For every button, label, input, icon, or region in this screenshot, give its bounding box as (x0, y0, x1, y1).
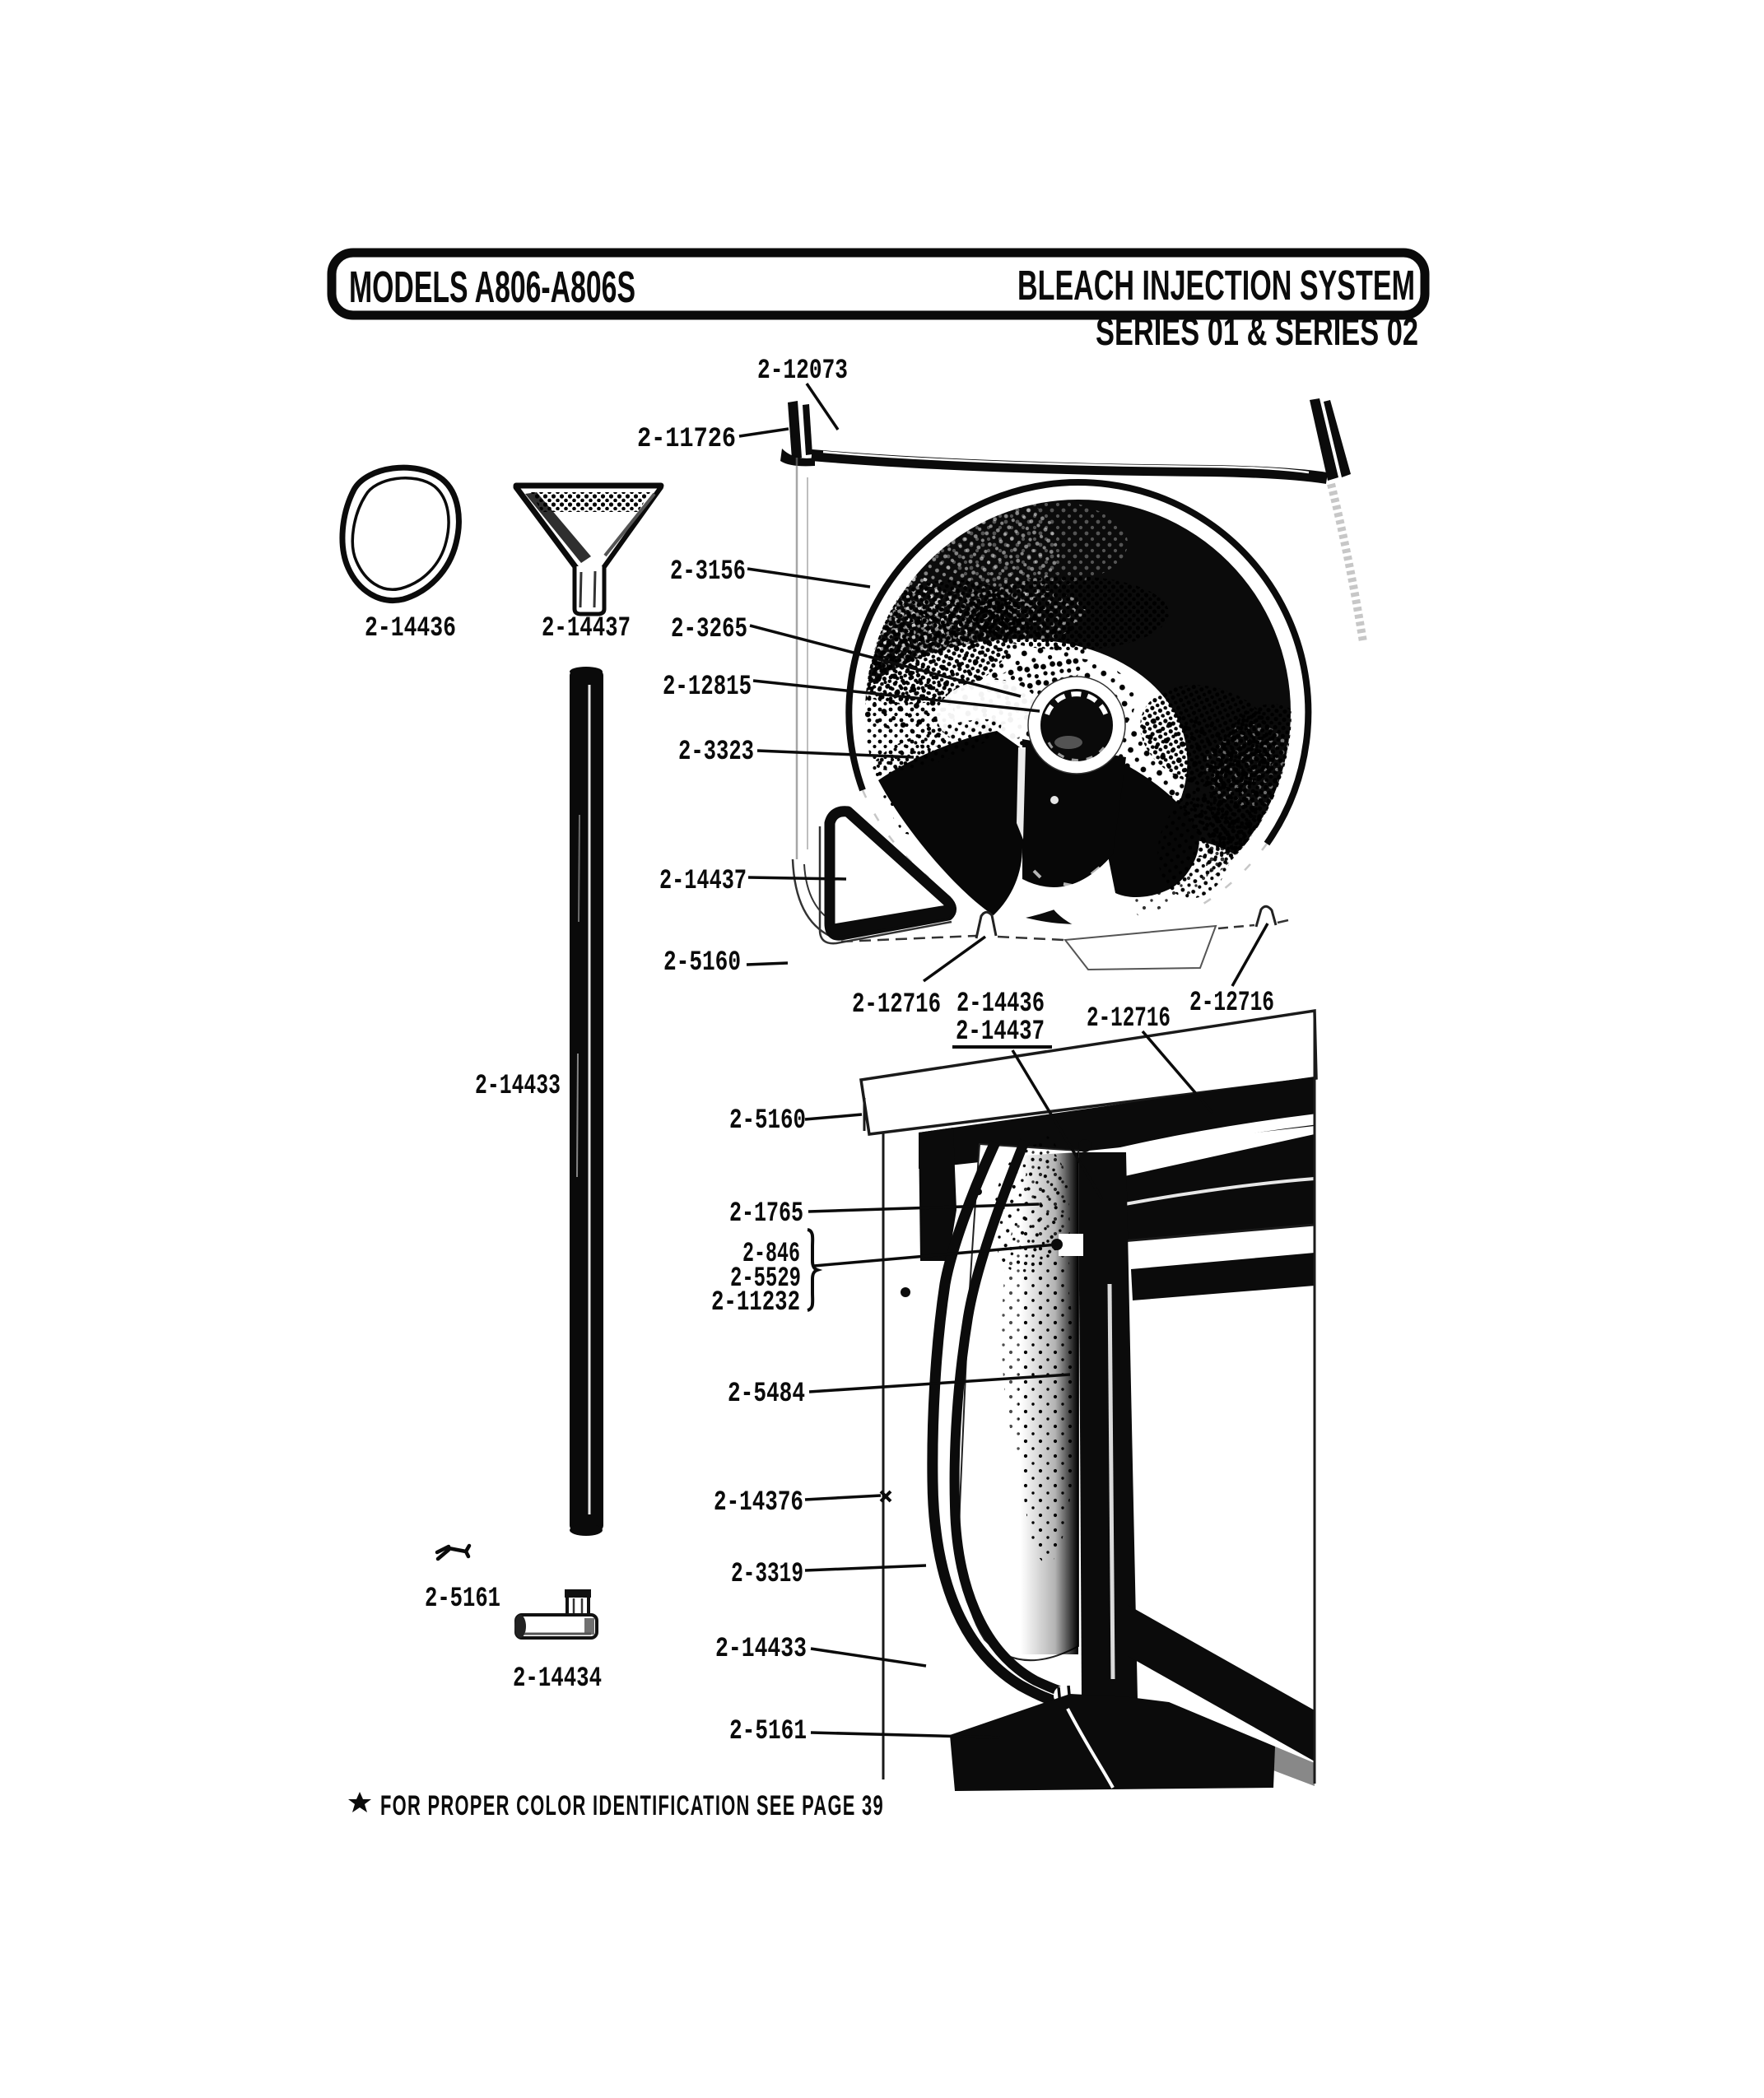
svg-text:2-14376: 2-14376 (714, 1487, 803, 1519)
svg-text:2-3265: 2-3265 (671, 614, 747, 645)
svg-text:2-5484: 2-5484 (728, 1379, 805, 1410)
svg-text:2-11232: 2-11232 (711, 1287, 800, 1319)
svg-text:SERIES 01 & SERIES 02: SERIES 01 & SERIES 02 (1096, 309, 1418, 353)
svg-text:2-12716: 2-12716 (852, 989, 941, 1021)
svg-text:2-5161: 2-5161 (729, 1716, 807, 1747)
svg-text:2-5160: 2-5160 (663, 947, 741, 979)
svg-text:2-3323: 2-3323 (678, 737, 754, 768)
svg-text:2-3156: 2-3156 (670, 556, 746, 588)
svg-text:FOR PROPER COLOR IDENTIFICATIO: FOR PROPER COLOR IDENTIFICATION SEE PAGE… (380, 1790, 884, 1821)
svg-text:2-5161: 2-5161 (425, 1584, 500, 1615)
svg-text:2-1765: 2-1765 (729, 1198, 803, 1230)
svg-text:2-11726: 2-11726 (637, 424, 736, 455)
svg-text:2-5160: 2-5160 (729, 1105, 806, 1137)
svg-text:2-3319: 2-3319 (731, 1559, 803, 1590)
svg-text:2-14433: 2-14433 (715, 1634, 807, 1665)
svg-text:2-12716: 2-12716 (1189, 988, 1274, 1019)
svg-text:2-14437: 2-14437 (542, 613, 631, 644)
svg-text:2-14434: 2-14434 (513, 1663, 602, 1695)
svg-text:2-14437: 2-14437 (659, 866, 747, 897)
svg-text:MODELS A806-A806S: MODELS A806-A806S (349, 263, 635, 312)
svg-text:2-14436: 2-14436 (365, 613, 456, 644)
svg-text:2-12716: 2-12716 (1087, 1003, 1171, 1035)
svg-text:2-14436: 2-14436 (956, 989, 1045, 1020)
svg-text:BLEACH INJECTION SYSTEM: BLEACH INJECTION SYSTEM (1017, 262, 1415, 309)
svg-text:2-12073: 2-12073 (757, 356, 848, 387)
svg-text:2-14437: 2-14437 (956, 1016, 1045, 1048)
svg-text:2-14433: 2-14433 (475, 1071, 561, 1102)
svg-text:2-12815: 2-12815 (663, 672, 752, 703)
